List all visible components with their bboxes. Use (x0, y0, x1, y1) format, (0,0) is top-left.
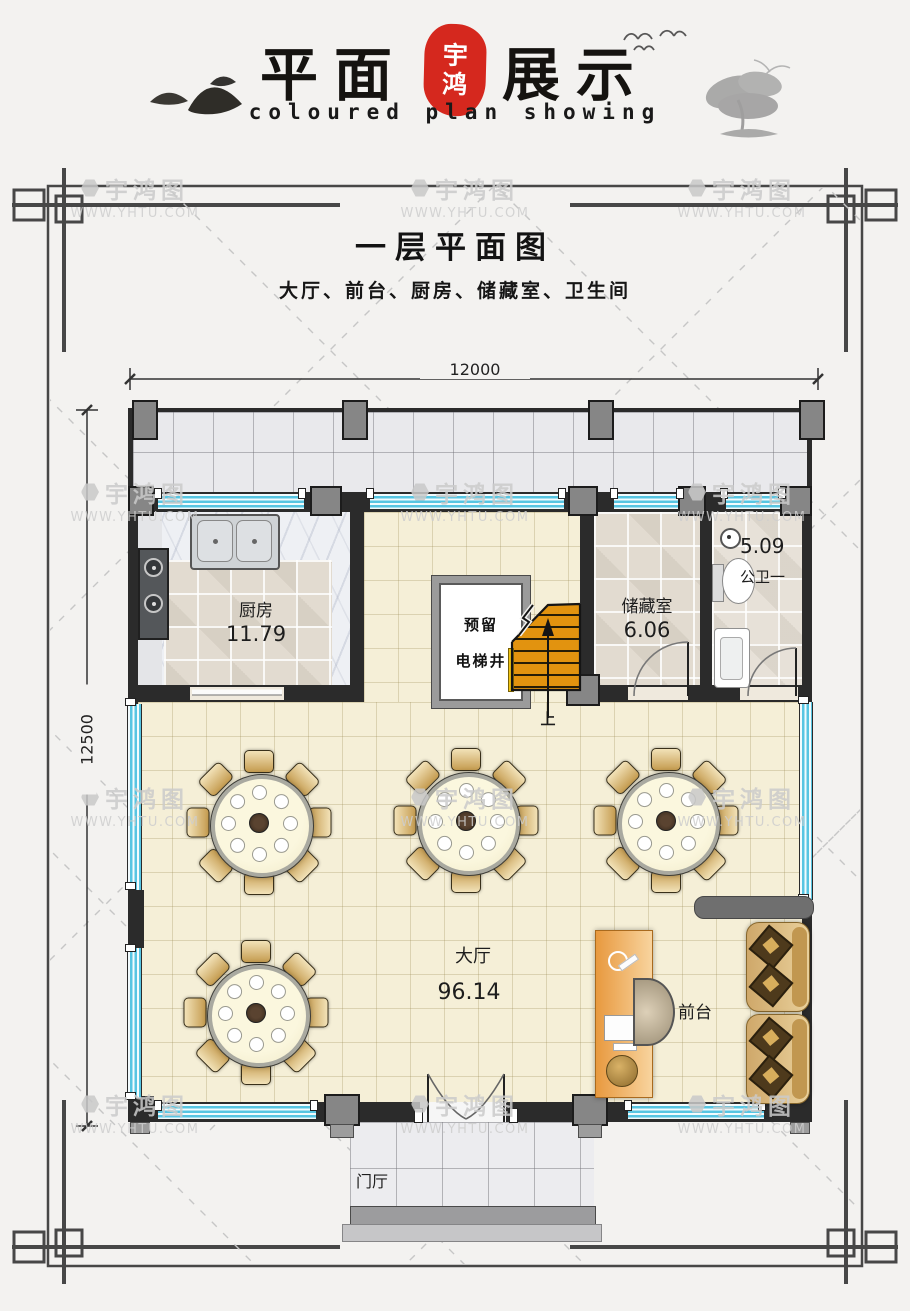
chair-icon (394, 806, 417, 836)
burner-icon (144, 558, 163, 577)
centerpiece-icon (249, 813, 269, 833)
plate-icon (283, 816, 298, 831)
sofa-cushion (748, 1054, 793, 1099)
window-frame (154, 1100, 162, 1111)
partition-wall (694, 896, 814, 919)
plate-icon (659, 783, 674, 798)
bathroom-label: 公卫一 (740, 566, 785, 587)
column (324, 1094, 360, 1126)
plan-title: 一层平面图 (0, 222, 910, 267)
terrace-floor (133, 412, 807, 492)
storage-area: 6.06 (590, 618, 704, 642)
seal-char-top: 宇 (443, 41, 469, 69)
plate-icon (428, 814, 443, 829)
centerpiece-icon (456, 811, 476, 831)
window (370, 493, 564, 510)
window (726, 493, 784, 510)
centerpiece-icon (246, 1003, 266, 1023)
chair-icon (187, 808, 210, 838)
window-frame (125, 1092, 136, 1100)
plate-icon (218, 1006, 233, 1021)
sofa-cushion (748, 1016, 793, 1061)
window-frame (798, 696, 809, 704)
column-cap (790, 1122, 810, 1134)
dimension-width: 12000 (420, 360, 530, 379)
window-frame (509, 1108, 518, 1123)
sink-basin (197, 520, 233, 562)
window-frame (310, 1100, 318, 1111)
chair-icon (241, 940, 271, 963)
door-opening (740, 687, 798, 700)
window-frame (154, 488, 162, 499)
dimension-height: 12500 (78, 685, 97, 795)
plate-icon (252, 785, 267, 800)
column (588, 400, 614, 440)
wall-segment (128, 512, 138, 704)
plate-icon (280, 1006, 295, 1021)
foyer-label: 门厅 (356, 1168, 388, 1192)
shower-head-icon (720, 528, 741, 549)
window (127, 948, 142, 1098)
plate-icon (221, 816, 236, 831)
plate-icon (659, 845, 674, 860)
plate-icon (249, 975, 264, 990)
window-frame (125, 698, 136, 706)
seal-char-bottom: 鸿 (442, 71, 468, 99)
chair-icon (594, 806, 617, 836)
plant-icon (606, 1055, 638, 1087)
sofa (746, 1014, 810, 1104)
hall-area: 96.14 (424, 980, 514, 1005)
chair-icon (451, 748, 481, 771)
window-frame (610, 488, 618, 499)
column-cap (130, 1122, 150, 1134)
plate-icon (459, 783, 474, 798)
header-subtitle: coloured plan showing (0, 100, 910, 124)
bathroom-area: 5.09 (740, 534, 785, 558)
gas-stove-icon (138, 548, 169, 640)
kitchen-sink-icon (190, 514, 280, 570)
hall-label: 大厅 (428, 942, 518, 968)
plate-icon (249, 1037, 264, 1052)
plate-icon (252, 847, 267, 862)
window-frame (720, 488, 728, 499)
kitchen-area: 11.79 (206, 622, 306, 646)
window-frame (624, 1100, 632, 1111)
front-desk-label: 前台 (678, 998, 712, 1023)
column (310, 486, 342, 516)
plate-icon (459, 845, 474, 860)
elevator-label-1: 预留 (464, 614, 498, 635)
storage-label: 储藏室 (590, 592, 704, 617)
window (158, 493, 304, 510)
window-frame (125, 944, 136, 952)
telephone-icon (606, 949, 636, 975)
window-frame (125, 882, 136, 890)
floor-plan: 预留 电梯井 厨房 11.79 储藏室 (128, 408, 812, 1248)
window (614, 493, 682, 510)
elevator-label-2: 电梯井 (455, 650, 506, 671)
column (572, 1094, 608, 1126)
wall-segment (128, 408, 812, 412)
window (799, 702, 813, 900)
column (128, 486, 154, 516)
wall-segment (802, 512, 812, 702)
sofa-cushion (748, 924, 793, 969)
window-frame (298, 488, 306, 499)
window-frame (778, 488, 786, 499)
stairs-up-label: 上 (534, 708, 562, 729)
entrance-step (350, 1206, 596, 1226)
chair-icon (651, 748, 681, 771)
stair-edge-strip (508, 648, 514, 692)
sofa-cushion (748, 962, 793, 1007)
bathroom-sink-icon (714, 628, 750, 688)
centerpiece-icon (656, 811, 676, 831)
wall-segment (350, 512, 364, 702)
column (342, 400, 368, 440)
column (799, 400, 825, 440)
door-opening (628, 687, 688, 700)
plate-icon (490, 814, 505, 829)
window-frame (676, 488, 684, 499)
window (158, 1103, 316, 1120)
plan-rooms-list: 大厅、前台、厨房、储藏室、卫生间 (0, 276, 910, 303)
column (568, 486, 598, 516)
chair-icon (184, 998, 207, 1028)
sink-basin (236, 520, 272, 562)
burner-icon (144, 594, 163, 613)
column-cap (330, 1124, 354, 1138)
window-frame (414, 1108, 423, 1123)
window-frame (558, 488, 566, 499)
chair-icon (244, 750, 274, 773)
wall-segment (128, 890, 144, 948)
window-frame (366, 488, 374, 499)
plate-icon (690, 814, 705, 829)
column (132, 400, 158, 440)
window (127, 704, 142, 890)
entrance-opening (420, 1102, 506, 1122)
plate-icon (628, 814, 643, 829)
door-opening (190, 687, 284, 700)
window (628, 1103, 764, 1120)
porch-floor (350, 1122, 594, 1206)
kitchen-label: 厨房 (206, 596, 306, 621)
column-cap (578, 1124, 602, 1138)
sofa (746, 922, 810, 1012)
entrance-step (342, 1224, 602, 1242)
page: { "header": { "title_left": "平面", "title… (0, 0, 910, 1311)
